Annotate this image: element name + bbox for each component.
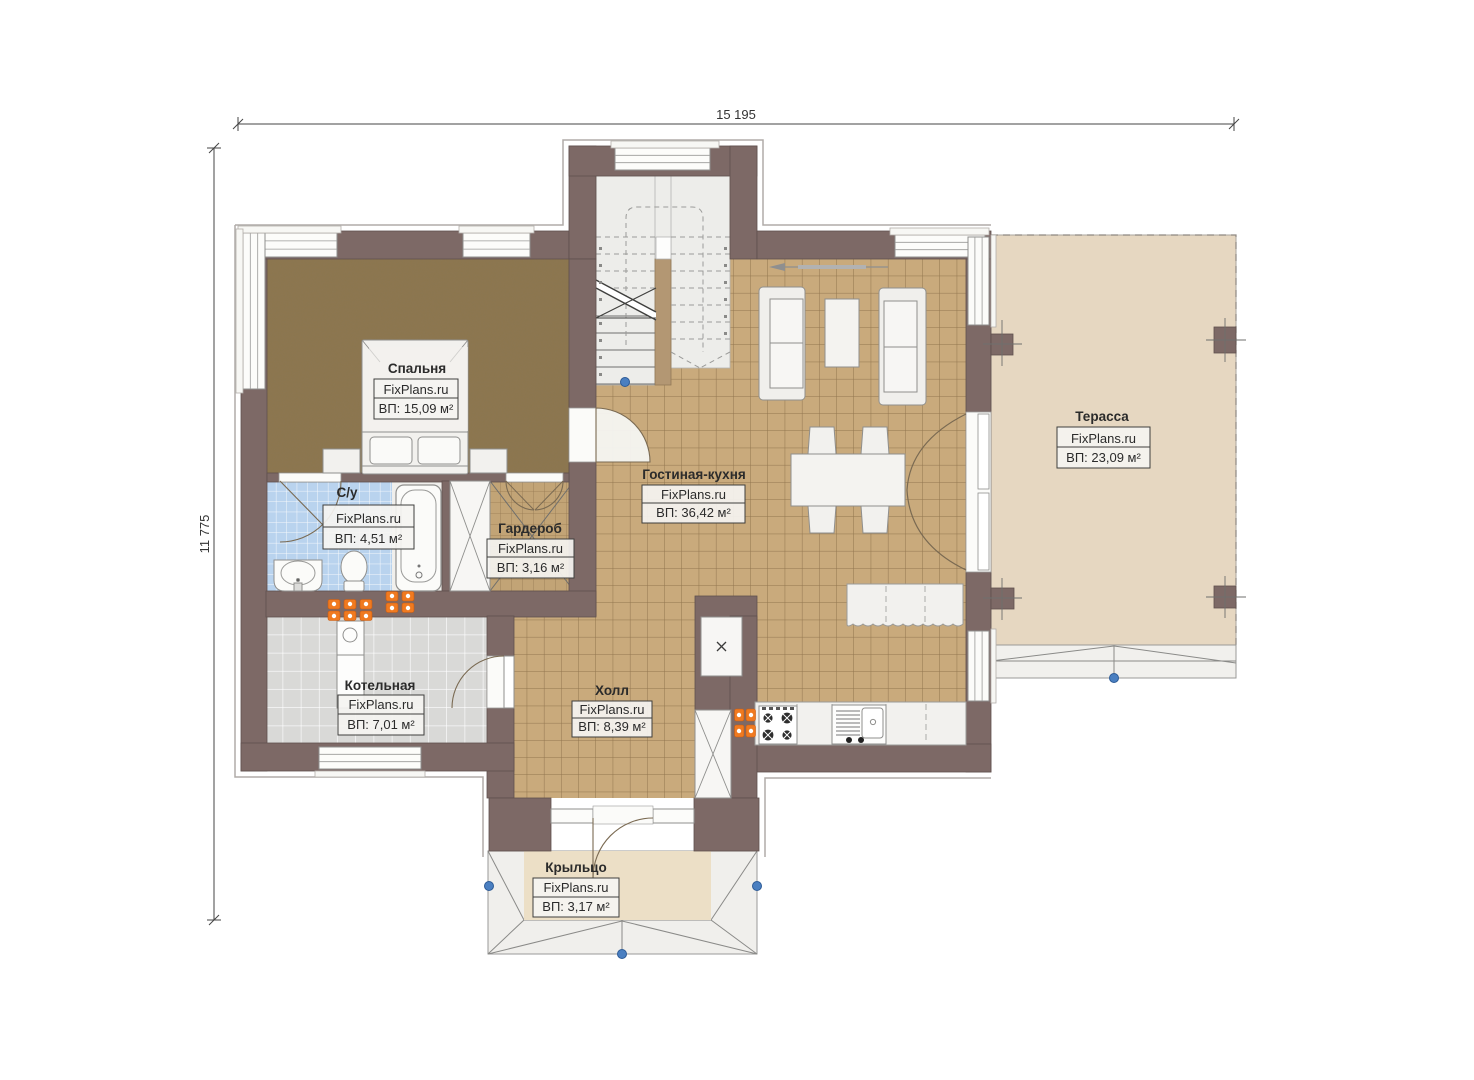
svg-text:FixPlans.ru: FixPlans.ru [543,880,608,895]
svg-text:FixPlans.ru: FixPlans.ru [661,487,726,502]
svg-text:ВП: 15,09 м²: ВП: 15,09 м² [379,401,454,416]
svg-text:Гардероб: Гардероб [498,521,562,536]
svg-text:Гостиная-кухня: Гостиная-кухня [642,467,745,482]
svg-text:ВП: 8,39 м²: ВП: 8,39 м² [578,719,646,734]
svg-text:FixPlans.ru: FixPlans.ru [498,541,563,556]
svg-text:FixPlans.ru: FixPlans.ru [336,511,401,526]
svg-text:FixPlans.ru: FixPlans.ru [348,697,413,712]
svg-text:11 775: 11 775 [197,515,212,554]
svg-text:FixPlans.ru: FixPlans.ru [1071,431,1136,446]
svg-text:ВП: 23,09 м²: ВП: 23,09 м² [1066,450,1141,465]
svg-text:Спальня: Спальня [388,361,446,376]
svg-text:Котельная: Котельная [345,678,416,693]
svg-text:ВП: 3,16 м²: ВП: 3,16 м² [497,560,565,575]
svg-text:ВП: 4,51 м²: ВП: 4,51 м² [335,531,403,546]
svg-text:FixPlans.ru: FixPlans.ru [383,382,448,397]
svg-text:FixPlans.ru: FixPlans.ru [579,702,644,717]
svg-text:ВП: 36,42 м²: ВП: 36,42 м² [656,505,731,520]
svg-text:Крыльцо: Крыльцо [545,860,606,875]
svg-text:С/у: С/у [336,485,358,500]
svg-text:Терасса: Терасса [1075,409,1129,424]
svg-text:Холл: Холл [595,683,629,698]
svg-text:ВП: 7,01 м²: ВП: 7,01 м² [347,717,415,732]
svg-text:15 195: 15 195 [716,107,756,122]
svg-text:ВП: 3,17 м²: ВП: 3,17 м² [542,899,610,914]
